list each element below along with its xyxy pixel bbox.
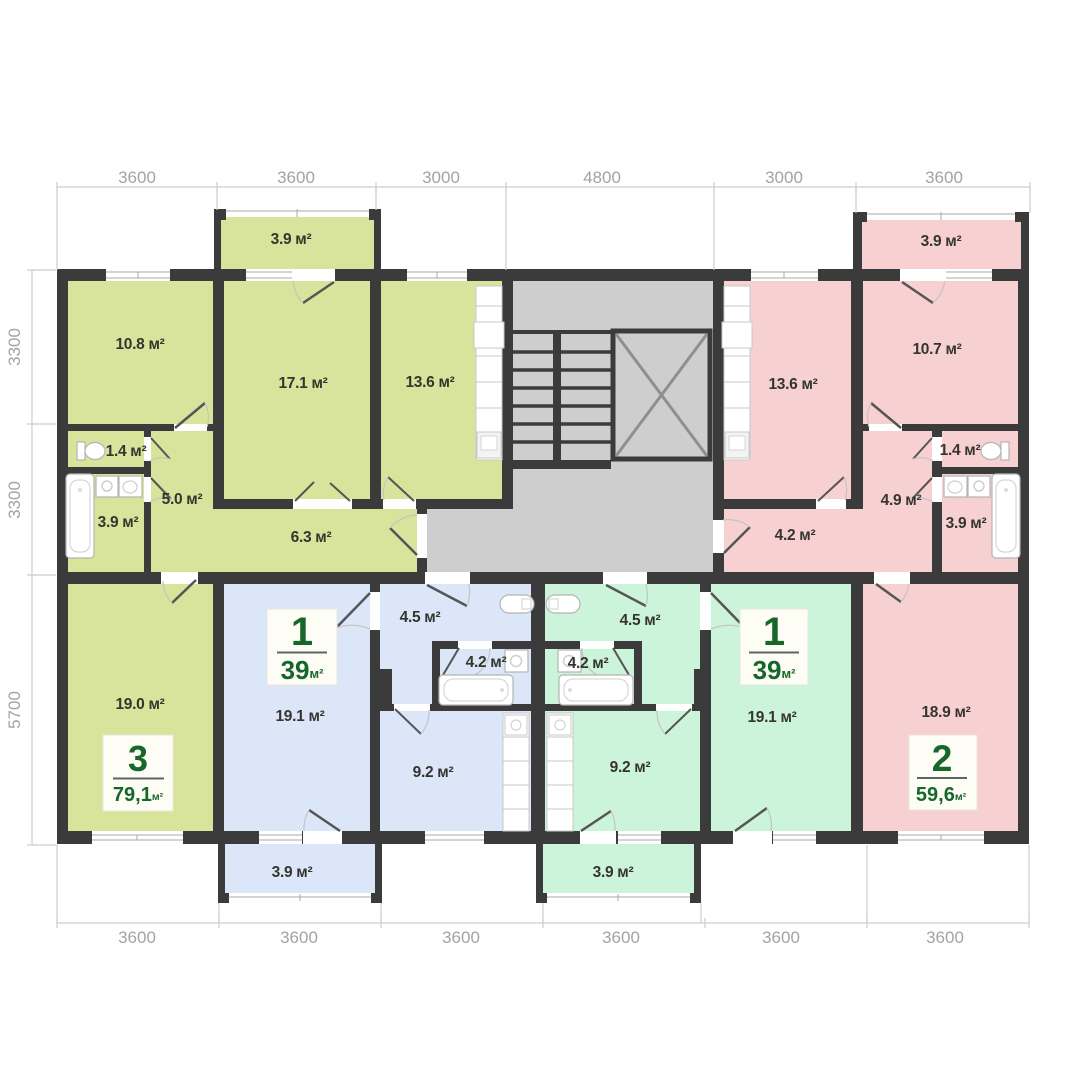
svg-text:3.9 м²: 3.9 м²	[593, 864, 634, 881]
svg-text:3.9 м²: 3.9 м²	[98, 514, 139, 531]
svg-text:13.6 м²: 13.6 м²	[405, 374, 454, 391]
svg-text:4.2 м²: 4.2 м²	[568, 655, 609, 672]
svg-text:10.8 м²: 10.8 м²	[115, 336, 164, 353]
svg-text:3600: 3600	[762, 928, 800, 947]
svg-text:5.0 м²: 5.0 м²	[162, 491, 203, 508]
svg-text:3300: 3300	[5, 481, 24, 519]
svg-text:6.3 м²: 6.3 м²	[291, 529, 332, 546]
svg-text:19.0 м²: 19.0 м²	[115, 696, 164, 713]
svg-text:3600: 3600	[277, 168, 315, 187]
svg-text:17.1 м²: 17.1 м²	[278, 375, 327, 392]
svg-text:18.9 м²: 18.9 м²	[921, 704, 970, 721]
svg-text:19.1 м²: 19.1 м²	[275, 708, 324, 725]
svg-text:3600: 3600	[602, 928, 640, 947]
svg-text:3000: 3000	[765, 168, 803, 187]
svg-text:1.4 м²: 1.4 м²	[106, 443, 147, 460]
svg-text:3600: 3600	[926, 928, 964, 947]
svg-text:5700: 5700	[5, 691, 24, 729]
svg-text:3300: 3300	[5, 328, 24, 366]
svg-text:3600: 3600	[118, 928, 156, 947]
svg-text:3.9 м²: 3.9 м²	[946, 515, 987, 532]
svg-text:3.9 м²: 3.9 м²	[921, 233, 962, 250]
svg-text:4.5 м²: 4.5 м²	[400, 609, 441, 626]
svg-text:3.9 м²: 3.9 м²	[272, 864, 313, 881]
svg-text:3600: 3600	[925, 168, 963, 187]
svg-text:2: 2	[932, 738, 953, 779]
svg-text:1: 1	[291, 610, 313, 654]
svg-text:9.2 м²: 9.2 м²	[413, 764, 454, 781]
svg-text:4.2 м²: 4.2 м²	[775, 527, 816, 544]
svg-text:4800: 4800	[583, 168, 621, 187]
svg-text:3: 3	[128, 738, 148, 779]
svg-text:3600: 3600	[280, 928, 318, 947]
svg-text:3000: 3000	[422, 168, 460, 187]
svg-text:4.2 м²: 4.2 м²	[466, 654, 507, 671]
svg-text:4.9 м²: 4.9 м²	[881, 492, 922, 509]
svg-text:1.4 м²: 1.4 м²	[940, 442, 981, 459]
svg-text:1: 1	[763, 610, 785, 654]
svg-text:13.6 м²: 13.6 м²	[768, 376, 817, 393]
svg-text:3600: 3600	[118, 168, 156, 187]
svg-text:10.7 м²: 10.7 м²	[912, 341, 961, 358]
svg-text:3600: 3600	[442, 928, 480, 947]
svg-text:9.2 м²: 9.2 м²	[610, 759, 651, 776]
svg-text:19.1 м²: 19.1 м²	[747, 709, 796, 726]
svg-text:4.5 м²: 4.5 м²	[620, 612, 661, 629]
svg-text:3.9 м²: 3.9 м²	[271, 231, 312, 248]
